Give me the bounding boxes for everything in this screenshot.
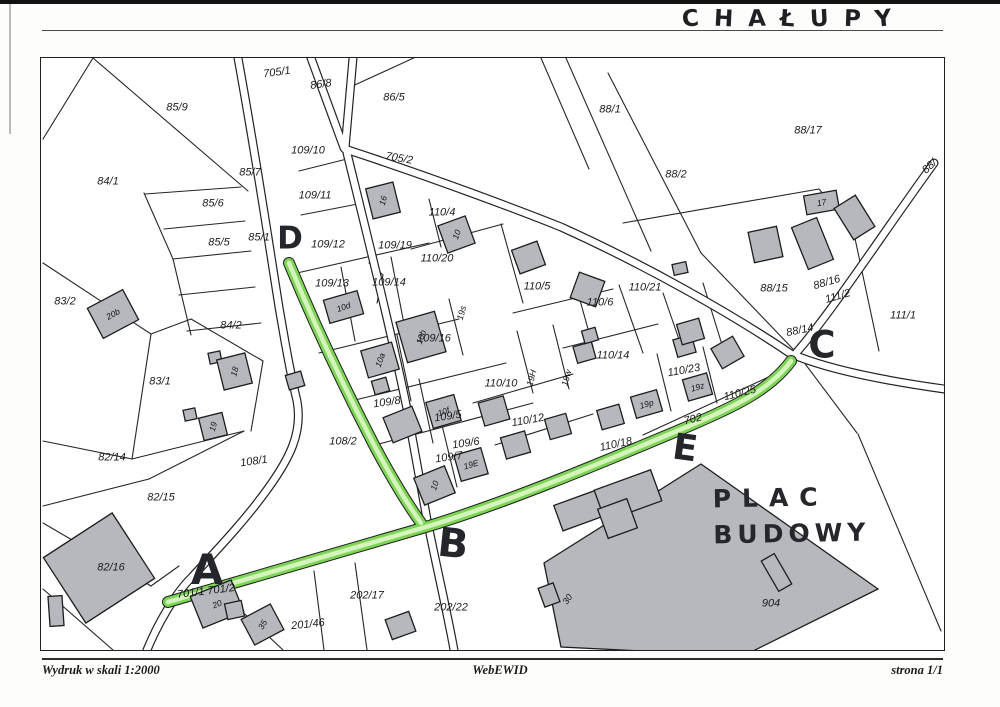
handwritten-point-a: A — [191, 549, 224, 591]
parcel-number: 85/9 — [166, 103, 187, 114]
parcel-number: 111/2 — [824, 288, 852, 306]
parcel-number: 109/10 — [291, 146, 325, 157]
handwritten-point-e: E — [670, 429, 699, 468]
parcel-number: 85/6 — [202, 199, 223, 210]
parcel-number: 109/8 — [373, 396, 402, 411]
title-letter: H — [713, 6, 734, 33]
parcel-number: 705/1 — [263, 66, 292, 81]
parcel-number: 85/5 — [208, 238, 229, 249]
parcel-number: 83/1 — [149, 377, 170, 388]
map-labels: 705/186/886/588/188/17109/10705/288/285/… — [41, 58, 944, 650]
site-label-line1: PLAC — [712, 482, 870, 514]
site-label-line2: BUDOWY — [713, 518, 871, 550]
parcel-number: 702 — [683, 412, 703, 427]
parcel-number: 88/17 — [794, 126, 822, 137]
header-rule — [42, 30, 943, 31]
title-letter: C — [681, 5, 700, 32]
parcel-number: 110/6 — [587, 298, 614, 309]
road-parcel-number: 88/ — [921, 158, 940, 176]
handwritten-site-label: PLACBUDOWY — [712, 482, 870, 550]
address-point-label: 19w — [561, 369, 574, 387]
parcel-number: 705/2 — [384, 151, 413, 167]
footer-rule — [42, 658, 943, 660]
parcel-number: 108/2 — [329, 437, 357, 448]
parcel-number: 85/1 — [248, 233, 269, 244]
parcel-number: 109/6 — [452, 437, 481, 452]
scanned-map-page: CHAŁUPY — [0, 0, 1000, 707]
handwritten-point-b: B — [436, 523, 471, 566]
parcel-number: 109/7 — [435, 451, 464, 466]
parcel-number: 86/8 — [310, 78, 333, 92]
parcel-number: 110/4 — [429, 208, 456, 219]
parcel-number: 82/15 — [147, 493, 175, 504]
title-letter: Ł — [780, 6, 797, 33]
parcel-number: 109/11 — [299, 191, 332, 202]
app-name: WebEWID — [0, 663, 1000, 678]
map-title-handwritten: CHAŁUPY — [682, 6, 892, 32]
title-letter: U — [809, 6, 829, 33]
parcel-number: 109/16 — [417, 334, 451, 345]
parcel-number: 109/12 — [311, 240, 345, 251]
parcel-number: 109/5 — [434, 410, 463, 425]
parcel-number: 109/19 — [378, 241, 412, 252]
parcel-number: 201/46 — [291, 618, 326, 632]
parcel-number: 86/5 — [383, 93, 404, 104]
parcel-number: 110/21 — [629, 283, 662, 294]
parcel-number: 110/23 — [667, 363, 701, 380]
parcel-number: 110/10 — [485, 379, 518, 390]
scan-edge-top — [0, 0, 1000, 4]
parcel-number: 110/20 — [421, 254, 454, 265]
scan-edge-left — [9, 4, 11, 134]
title-letter: P — [843, 6, 861, 33]
parcel-number: 88/1 — [599, 105, 620, 116]
parcel-number: 82/16 — [97, 563, 125, 574]
parcel-number: 85/7 — [239, 168, 260, 179]
parcel-number: 202/22 — [434, 603, 468, 614]
address-point-label: 19s — [456, 305, 468, 321]
parcel-number: 111/1 — [890, 311, 916, 322]
parcel-number: 110/12 — [511, 413, 545, 430]
parcel-number: 110/5 — [524, 282, 551, 293]
parcel-number: 109/14 — [372, 278, 406, 289]
parcel-number: 84/1 — [97, 177, 118, 188]
map-canvas: 20b18192035161010d10b10a1010f19E19p19z17… — [40, 57, 945, 651]
parcel-number: 108/1 — [240, 455, 269, 470]
title-letter: A — [747, 6, 766, 33]
parcel-number: 110/14 — [597, 351, 630, 362]
parcel-number: 110/18 — [599, 436, 633, 454]
handwritten-point-c: C — [808, 327, 835, 364]
parcel-number: 202/17 — [350, 591, 384, 602]
address-point-label: 19H — [526, 369, 539, 387]
parcel-number: 88/2 — [665, 170, 686, 181]
parcel-number: 88/15 — [760, 284, 788, 295]
parcel-number: 904 — [762, 599, 780, 610]
page-number: strona 1/1 — [891, 663, 943, 678]
parcel-number: 84/2 — [220, 321, 241, 332]
parcel-number: 82/14 — [98, 453, 126, 464]
parcel-number: 83/2 — [54, 297, 75, 308]
parcel-number: 109/13 — [315, 279, 349, 290]
parcel-number: 110/25 — [723, 385, 758, 404]
handwritten-point-d: D — [277, 224, 303, 255]
title-letter: Y — [874, 5, 893, 33]
